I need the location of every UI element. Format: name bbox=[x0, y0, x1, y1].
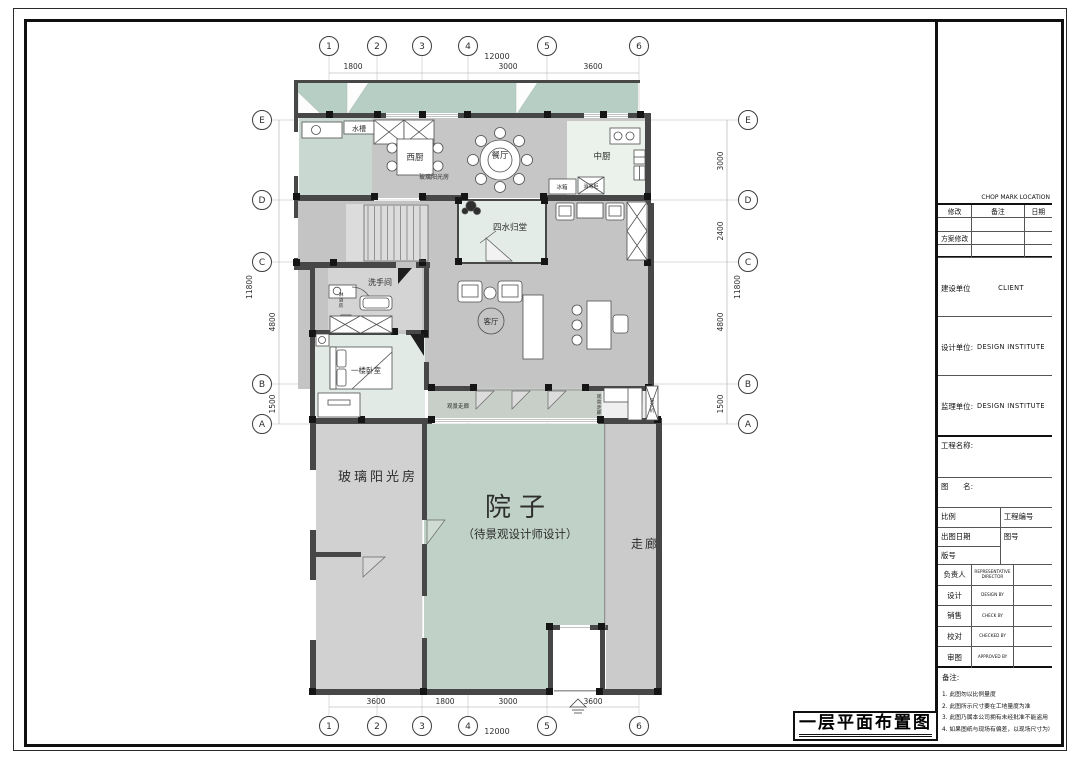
entry-vestibule-floor bbox=[553, 628, 602, 690]
owner-row: 建设单位 CLIENT bbox=[938, 258, 1052, 317]
sign-row-director: 负责人 REPRESENTATIVE DIRECTOR bbox=[938, 565, 1052, 586]
dim-bottom-3600a: 3600 bbox=[366, 697, 385, 706]
unit-section: 建设单位 CLIENT 设计单位: DESIGN INSTITUTE 监理单位:… bbox=[938, 258, 1052, 437]
dim-left-4800: 4800 bbox=[268, 312, 277, 331]
dim-right-11800: 11800 bbox=[733, 275, 742, 299]
svg-text:D: D bbox=[259, 196, 266, 206]
note-line: 2. 此图所示尺寸要在工地量度为准 bbox=[942, 702, 1050, 714]
svg-text:B: B bbox=[745, 380, 751, 390]
date-cell: 出图日期 bbox=[938, 528, 1001, 547]
svg-text:1: 1 bbox=[326, 42, 332, 52]
svg-text:6: 6 bbox=[636, 42, 642, 52]
scale-cell: 比例 bbox=[938, 508, 1001, 528]
svg-text:E: E bbox=[259, 116, 265, 126]
project-name-box: 工程名称: bbox=[938, 437, 1052, 478]
svg-text:A: A bbox=[745, 420, 752, 430]
sign-row-approve: 审图 APPROVED BY bbox=[938, 647, 1052, 668]
svg-text:E: E bbox=[745, 116, 751, 126]
svg-text:4: 4 bbox=[465, 722, 471, 732]
dim-left-11800: 11800 bbox=[245, 275, 254, 299]
svg-text:5: 5 bbox=[544, 722, 550, 732]
stair-floor bbox=[346, 204, 428, 261]
svg-text:C: C bbox=[259, 258, 265, 268]
drawing-title-box: 一层平面布置图 bbox=[793, 711, 938, 741]
room-label-sink: 水槽 bbox=[352, 124, 366, 133]
notes-section: 备注: 1. 此图勿以比例量度 2. 此图所示尺寸要在工地量度为准 3. 此图乃… bbox=[938, 668, 1052, 741]
drawing-no-cell: 图号 bbox=[1001, 528, 1052, 565]
note-line: 4. 如果图纸与现场有偏差，以现场尺寸为准 bbox=[942, 725, 1050, 737]
rev-col-date: 日期 bbox=[1025, 205, 1052, 218]
rev-col-modify: 修改 bbox=[938, 205, 972, 218]
room-label-sterilizer: 消毒柜 bbox=[583, 183, 598, 190]
drawing-name-box: 图 名: bbox=[938, 478, 1052, 508]
room-label-fridge: 冰箱 bbox=[556, 183, 568, 191]
room-label-chinese-kitchen: 中厨 bbox=[593, 151, 611, 162]
room-label-corridor: 走廊 bbox=[631, 536, 659, 551]
project-no-cell: 工程编号 bbox=[1001, 508, 1052, 528]
sign-row-check: 校对 CHECKED BY bbox=[938, 627, 1052, 648]
room-label-courtyard: 院子 bbox=[485, 493, 553, 523]
sign-row-design: 设计 DESIGN BY bbox=[938, 586, 1052, 607]
chop-mark-area: CHOP MARK LOCATION bbox=[938, 22, 1052, 205]
dim-right-2400: 2400 bbox=[716, 221, 725, 240]
dim-top-12000: 12000 bbox=[484, 52, 509, 61]
svg-text:2: 2 bbox=[374, 722, 380, 732]
svg-text:3: 3 bbox=[419, 722, 425, 732]
corridor-floor bbox=[606, 424, 656, 690]
room-label-courtyard-note: （待景观设计师设计） bbox=[463, 527, 578, 541]
dim-right-4800: 4800 bbox=[716, 312, 725, 331]
svg-text:3: 3 bbox=[419, 42, 425, 52]
room-label-shower: 淋浴房 bbox=[339, 291, 344, 309]
room-label-view-corridor: 观景走廊 bbox=[447, 402, 470, 410]
title-block: CHOP MARK LOCATION 修改 备注 日期 方案修改 建设单位 CL… bbox=[935, 22, 1052, 741]
dim-bottom-1800: 1800 bbox=[435, 697, 454, 706]
svg-text:6: 6 bbox=[636, 722, 642, 732]
room-label-laundry: 洗衣机 bbox=[650, 397, 655, 414]
rev-col-remark: 备注 bbox=[972, 205, 1024, 218]
signature-table: 负责人 REPRESENTATIVE DIRECTOR 设计 DESIGN BY… bbox=[938, 565, 1052, 668]
rev-row-scheme: 方案修改 bbox=[938, 232, 972, 245]
design-unit-row: 设计单位: DESIGN INSTITUTE bbox=[938, 317, 1052, 376]
sign-row-sales: 销售 CHECK BY bbox=[938, 606, 1052, 627]
svg-text:A: A bbox=[259, 420, 266, 430]
drawing-title-text: 一层平面布置图 bbox=[799, 715, 932, 737]
grid-bubbles-right: E D C B A bbox=[739, 111, 758, 434]
meta-grid: 比例 出图日期 版号 工程编号 图号 bbox=[938, 508, 1052, 565]
svg-text:5: 5 bbox=[544, 42, 550, 52]
dim-right-1500: 1500 bbox=[716, 394, 725, 413]
note-line: 1. 此图勿以比例量度 bbox=[942, 690, 1050, 702]
svg-text:2: 2 bbox=[374, 42, 380, 52]
supervision-row: 监理单位: DESIGN INSTITUTE bbox=[938, 376, 1052, 435]
room-label-sunroom-top: 玻璃阳光房 bbox=[419, 173, 449, 181]
room-label-dining: 餐厅 bbox=[491, 151, 509, 161]
room-label-view-corridor-v: 观景走廊 bbox=[597, 394, 602, 416]
room-label-west-kitchen: 西厨 bbox=[406, 153, 424, 163]
room-label-sunroom: 玻璃阳光房 bbox=[338, 469, 418, 485]
svg-text:C: C bbox=[745, 258, 751, 268]
svg-text:1: 1 bbox=[326, 722, 332, 732]
dim-left-1500: 1500 bbox=[268, 394, 277, 413]
room-label-atrium: 四水归堂 bbox=[493, 222, 527, 233]
revision-table: 修改 备注 日期 方案修改 bbox=[938, 205, 1052, 258]
drawing-sheet: 水槽 西厨 玻璃阳光房 餐厅 中厨 冰箱 消毒柜 四水归堂 洗手间 淋浴房 一楼… bbox=[0, 0, 1080, 764]
dim-top-1800: 1800 bbox=[343, 62, 362, 71]
dim-top-3600: 3600 bbox=[583, 62, 602, 71]
note-line: 3. 此图乃属本公司拥有未经批准不能盗用 bbox=[942, 713, 1050, 725]
floor-plan: 水槽 西厨 玻璃阳光房 餐厅 中厨 冰箱 消毒柜 四水归堂 洗手间 淋浴房 一楼… bbox=[0, 0, 1080, 764]
dim-top-3000: 3000 bbox=[498, 62, 517, 71]
room-label-bathroom: 洗手间 bbox=[368, 277, 392, 287]
chop-mark-label: CHOP MARK LOCATION bbox=[981, 194, 1050, 201]
room-label-living: 客厅 bbox=[484, 316, 499, 326]
dim-bottom-3600b: 3600 bbox=[583, 697, 602, 706]
dim-bottom-3000: 3000 bbox=[498, 697, 517, 706]
svg-text:4: 4 bbox=[465, 42, 471, 52]
grid-bubbles-left: E D C B A bbox=[253, 111, 272, 434]
notes-header: 备注: bbox=[942, 672, 1050, 683]
svg-text:D: D bbox=[745, 196, 752, 206]
version-cell: 版号 bbox=[938, 547, 1001, 565]
dim-right-3000: 3000 bbox=[716, 151, 725, 170]
svg-text:B: B bbox=[259, 380, 265, 390]
dim-bottom-12000: 12000 bbox=[484, 727, 509, 736]
room-label-bedroom: 一楼卧室 bbox=[351, 365, 381, 375]
